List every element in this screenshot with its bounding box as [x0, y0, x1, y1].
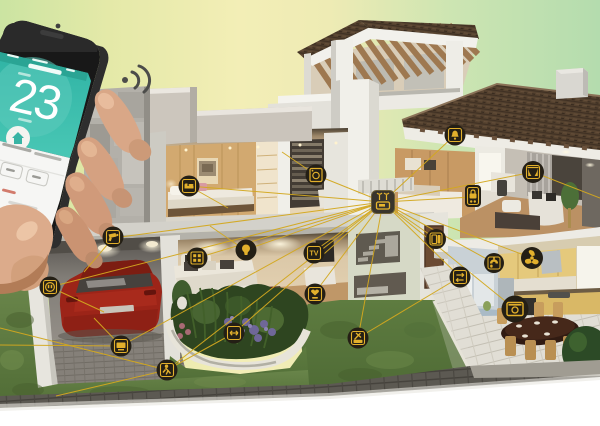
svg-text:TV: TV [310, 251, 319, 258]
